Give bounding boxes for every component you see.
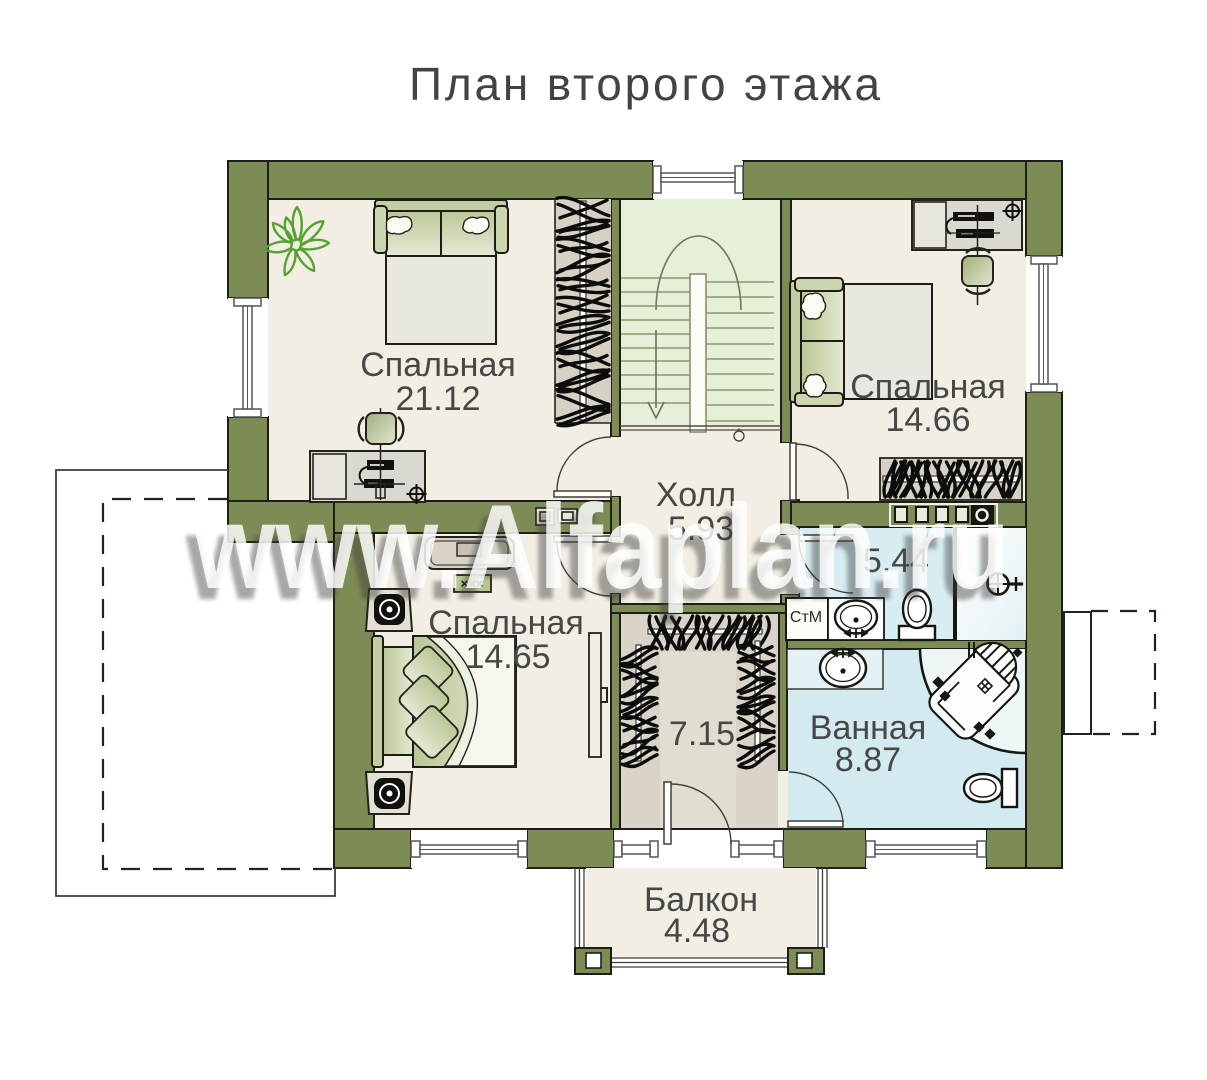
svg-text:14.66: 14.66: [885, 401, 970, 439]
svg-text:7.15: 7.15: [669, 715, 735, 753]
svg-text:21.12: 21.12: [395, 380, 480, 418]
svg-text:План второго этажа: План второго этажа: [409, 58, 883, 110]
svg-text:4.48: 4.48: [664, 912, 730, 950]
svg-text:8.87: 8.87: [835, 741, 901, 779]
svg-text:www.Alfaplan.ru: www.Alfaplan.ru: [193, 480, 1010, 614]
svg-text:14.65: 14.65: [465, 638, 550, 676]
svg-text:Спальная: Спальная: [360, 346, 516, 384]
